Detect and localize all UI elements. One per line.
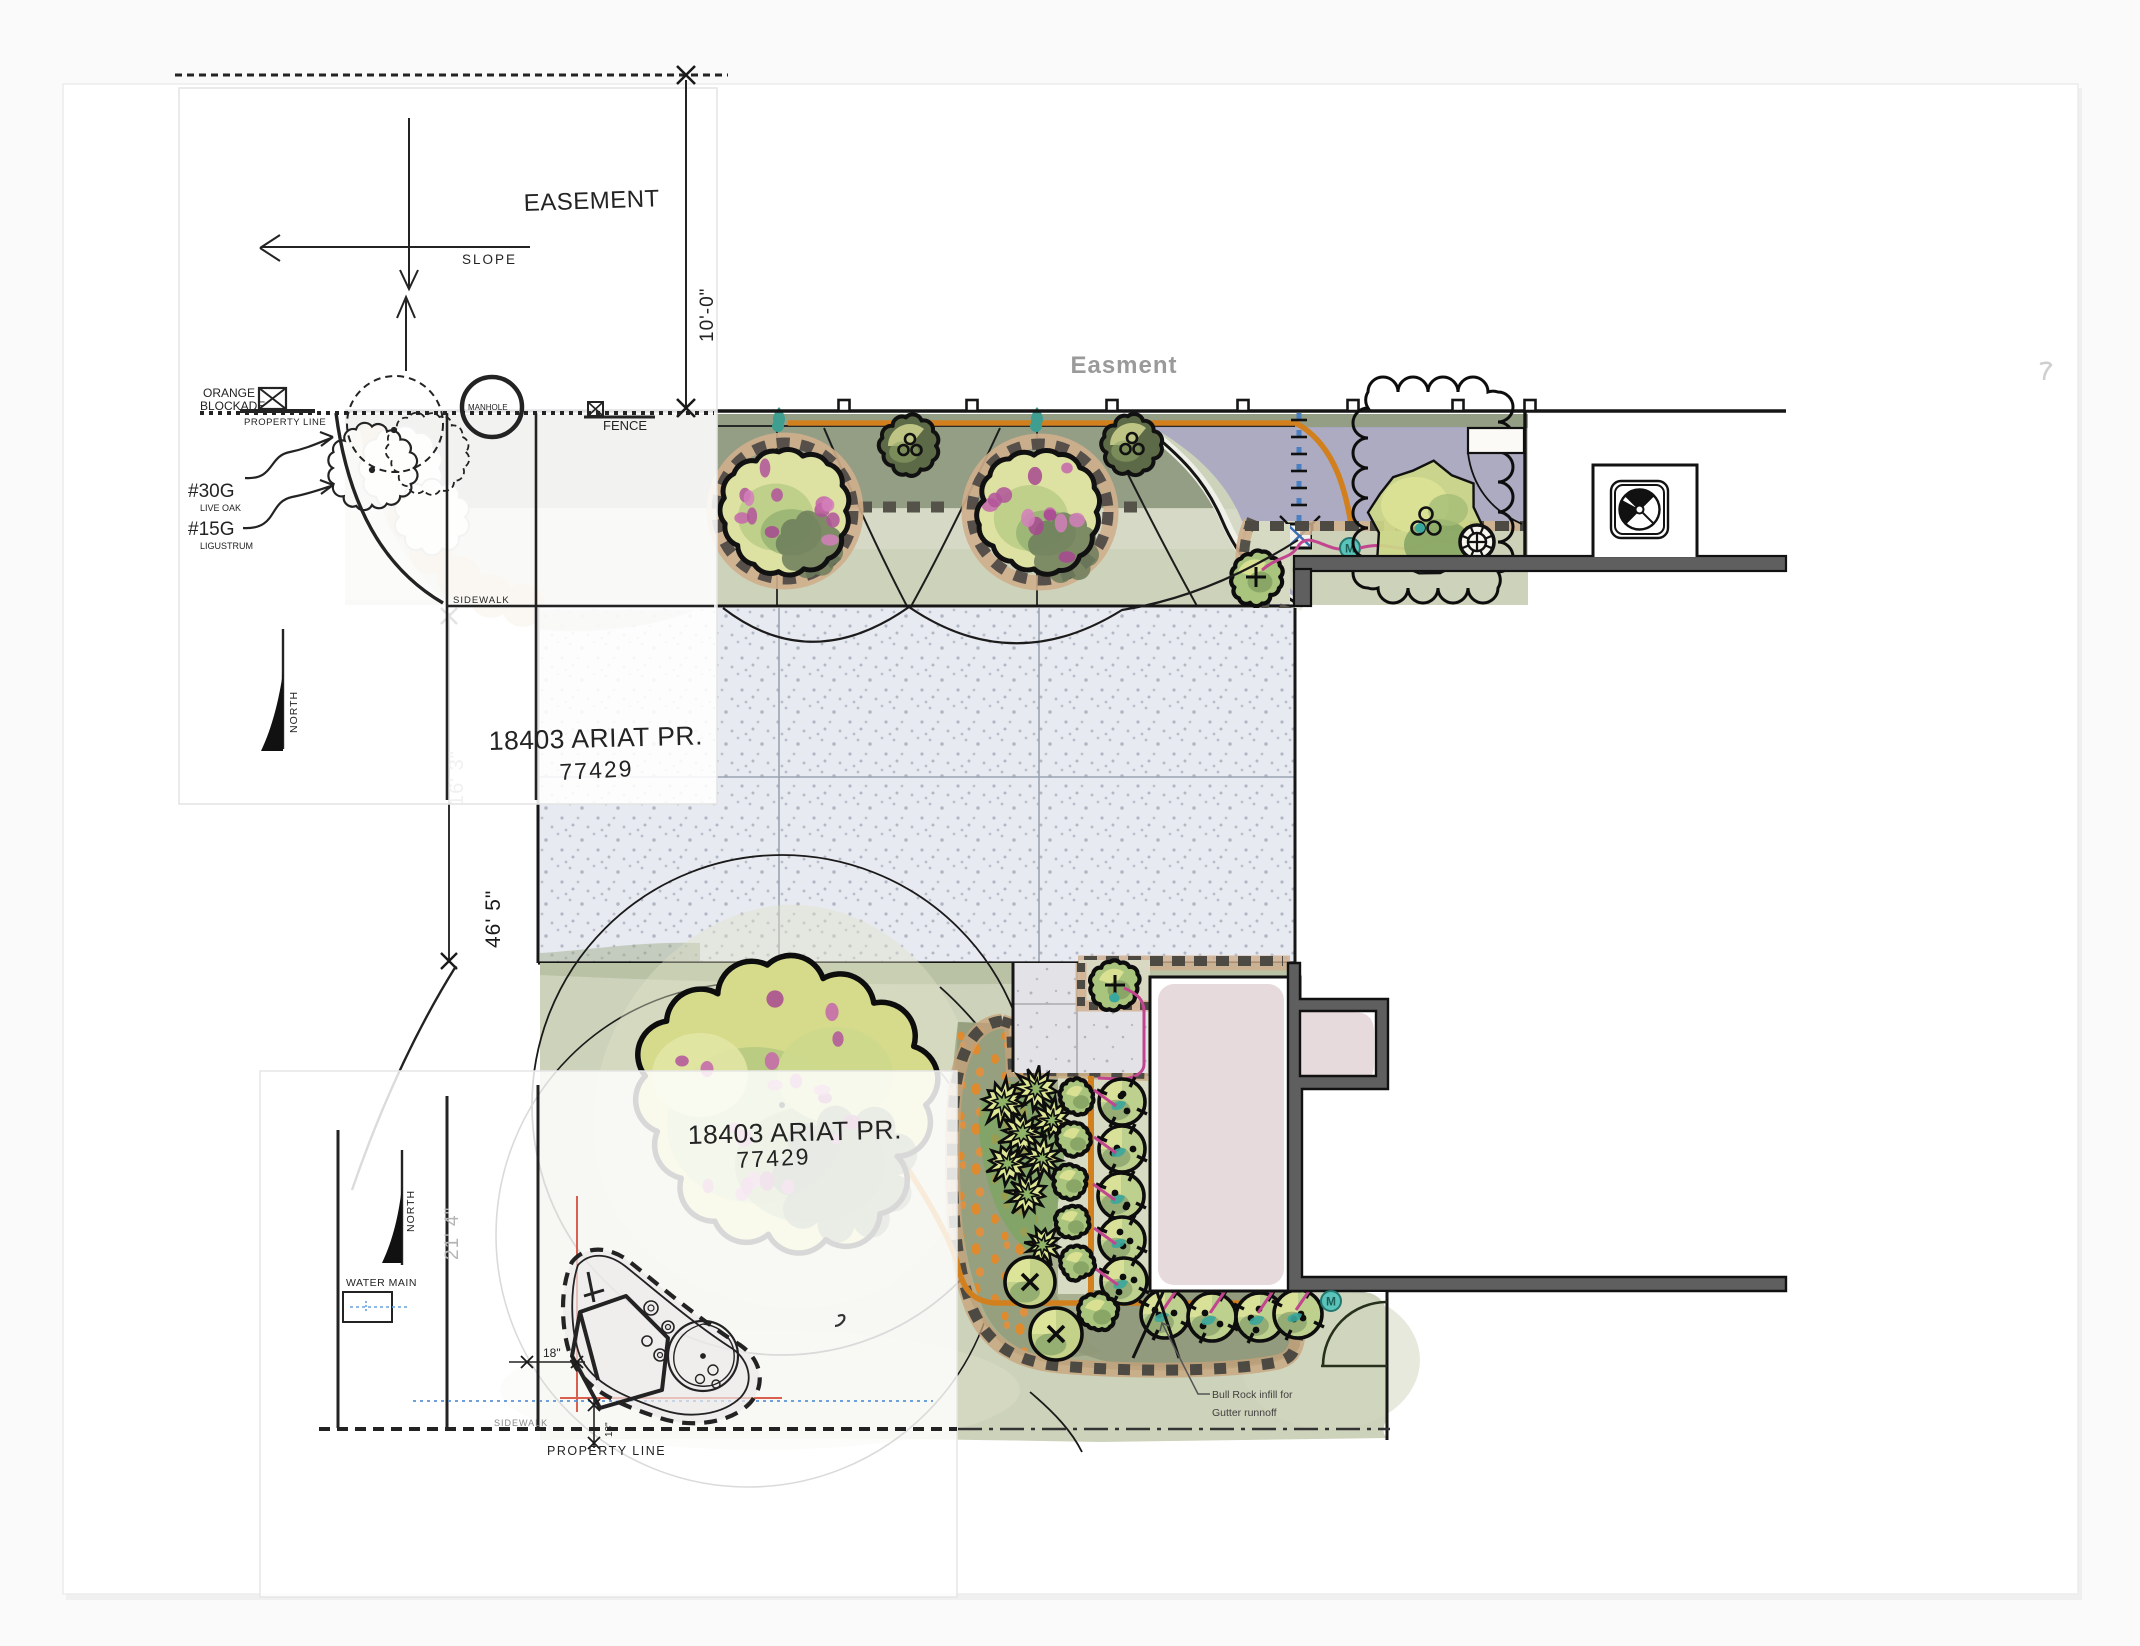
svg-text:MANHOLE: MANHOLE — [468, 403, 508, 412]
svg-text:NORTH: NORTH — [405, 1190, 417, 1232]
svg-text:Bull Rock infill for: Bull Rock infill for — [1212, 1389, 1293, 1401]
svg-text:SIDEWALK: SIDEWALK — [494, 1418, 548, 1428]
svg-text:BLOCKADE: BLOCKADE — [200, 399, 265, 413]
svg-text:SLOPE: SLOPE — [462, 252, 517, 267]
svg-text:18": 18" — [543, 1346, 561, 1360]
svg-text:Easment: Easment — [1070, 352, 1177, 379]
svg-text:18": 18" — [604, 1422, 615, 1437]
svg-text:FENCE: FENCE — [603, 418, 647, 433]
svg-text:PROPERTY LINE: PROPERTY LINE — [244, 417, 326, 428]
svg-text:21' 4": 21' 4" — [442, 1207, 463, 1260]
svg-text:Gutter runnoff: Gutter runnoff — [1212, 1407, 1277, 1419]
svg-text:18403 ARIAT PR.: 18403 ARIAT PR. — [488, 720, 703, 756]
svg-text:46' 5": 46' 5" — [482, 890, 505, 948]
svg-text:77429: 77429 — [559, 755, 634, 785]
svg-text:NORTH: NORTH — [288, 691, 300, 733]
svg-text:EASEMENT: EASEMENT — [523, 185, 660, 217]
svg-text:LIGUSTRUM: LIGUSTRUM — [200, 541, 253, 551]
svg-text:PROPERTY LINE: PROPERTY LINE — [547, 1444, 666, 1458]
svg-text:10'-0": 10'-0" — [697, 288, 718, 342]
svg-text:LIVE OAK: LIVE OAK — [200, 503, 241, 513]
svg-text:SIDEWALK: SIDEWALK — [453, 595, 510, 606]
svg-text:M: M — [1326, 1295, 1336, 1309]
svg-text:#15G: #15G — [188, 519, 234, 540]
svg-text:#30G: #30G — [188, 481, 234, 502]
svg-text:77429: 77429 — [736, 1143, 811, 1173]
svg-text:ORANGE: ORANGE — [203, 386, 255, 400]
svg-text:WATER MAIN: WATER MAIN — [346, 1277, 417, 1289]
